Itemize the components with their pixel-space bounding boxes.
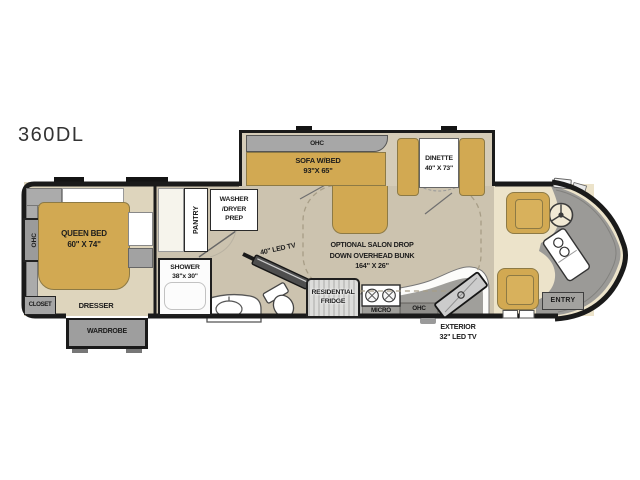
entry-step-2 <box>520 311 535 319</box>
closet: CLOSET <box>24 296 56 315</box>
dresser-label: DRESSER <box>64 301 128 310</box>
sofa-ohc-label: OHC <box>247 140 387 147</box>
window-tick-1 <box>54 177 84 182</box>
bedroom-side-cabinet <box>128 248 153 268</box>
exterior-tv-label: EXTERIOR 32" LED TV <box>418 322 498 342</box>
shower: SHOWER 38"x 30" <box>158 258 212 316</box>
shower-label: SHOWER 38"x 30" <box>160 263 210 281</box>
wardrobe-foot-1 <box>72 349 88 353</box>
entry-well: ENTRY <box>542 292 584 310</box>
washer-dryer-prep: WASHER /DRYER PREP <box>210 189 258 231</box>
bunk-leader-left <box>300 184 327 199</box>
sofa-ohc-cabinet: OHC <box>246 135 388 152</box>
pantry: PANTRY <box>184 188 208 252</box>
bunk-leader-right <box>425 193 452 214</box>
pantry-label: PANTRY <box>185 189 207 251</box>
queen-bed-label: QUEEN BED 60" X 74" <box>38 228 130 250</box>
hall-cabinet <box>158 188 184 252</box>
wardrobe-slideout: WARDROBE <box>66 318 148 349</box>
bunk-note: OPTIONAL SALON DROP DOWN OVERHEAD BUNK 1… <box>300 240 444 272</box>
bedroom-tv-cabinet <box>128 212 153 246</box>
washer-dryer-label: WASHER /DRYER PREP <box>211 195 257 224</box>
entry-step-1 <box>503 311 518 319</box>
steering-hub <box>558 212 563 217</box>
kitchen-ohc-label: OHC <box>400 305 438 312</box>
residential-fridge: RESIDENTIAL FRIDGE <box>306 278 360 318</box>
driver-seat <box>506 192 550 234</box>
passenger-seat <box>497 268 539 310</box>
entry-label: ENTRY <box>543 297 583 304</box>
window-tick-2 <box>126 177 168 182</box>
wardrobe-label: WARDROBE <box>69 328 145 335</box>
bath-door-swing <box>210 231 236 257</box>
dinette-label: DINETTE 40" X 73" <box>409 154 469 173</box>
fridge-label: RESIDENTIAL FRIDGE <box>308 288 358 306</box>
micro-label: MICRO <box>362 307 400 314</box>
closet-label: CLOSET <box>25 301 55 308</box>
driver-seat-cushion <box>515 199 543 229</box>
passenger-seat-cushion <box>506 275 534 305</box>
wardrobe-foot-2 <box>126 349 142 353</box>
floorplan-canvas: 360DL <box>0 0 640 480</box>
shower-pan <box>164 282 206 310</box>
sofa-chaise <box>332 186 388 234</box>
sofa-label: SOFA W/BED 93"X 65" <box>258 156 378 175</box>
